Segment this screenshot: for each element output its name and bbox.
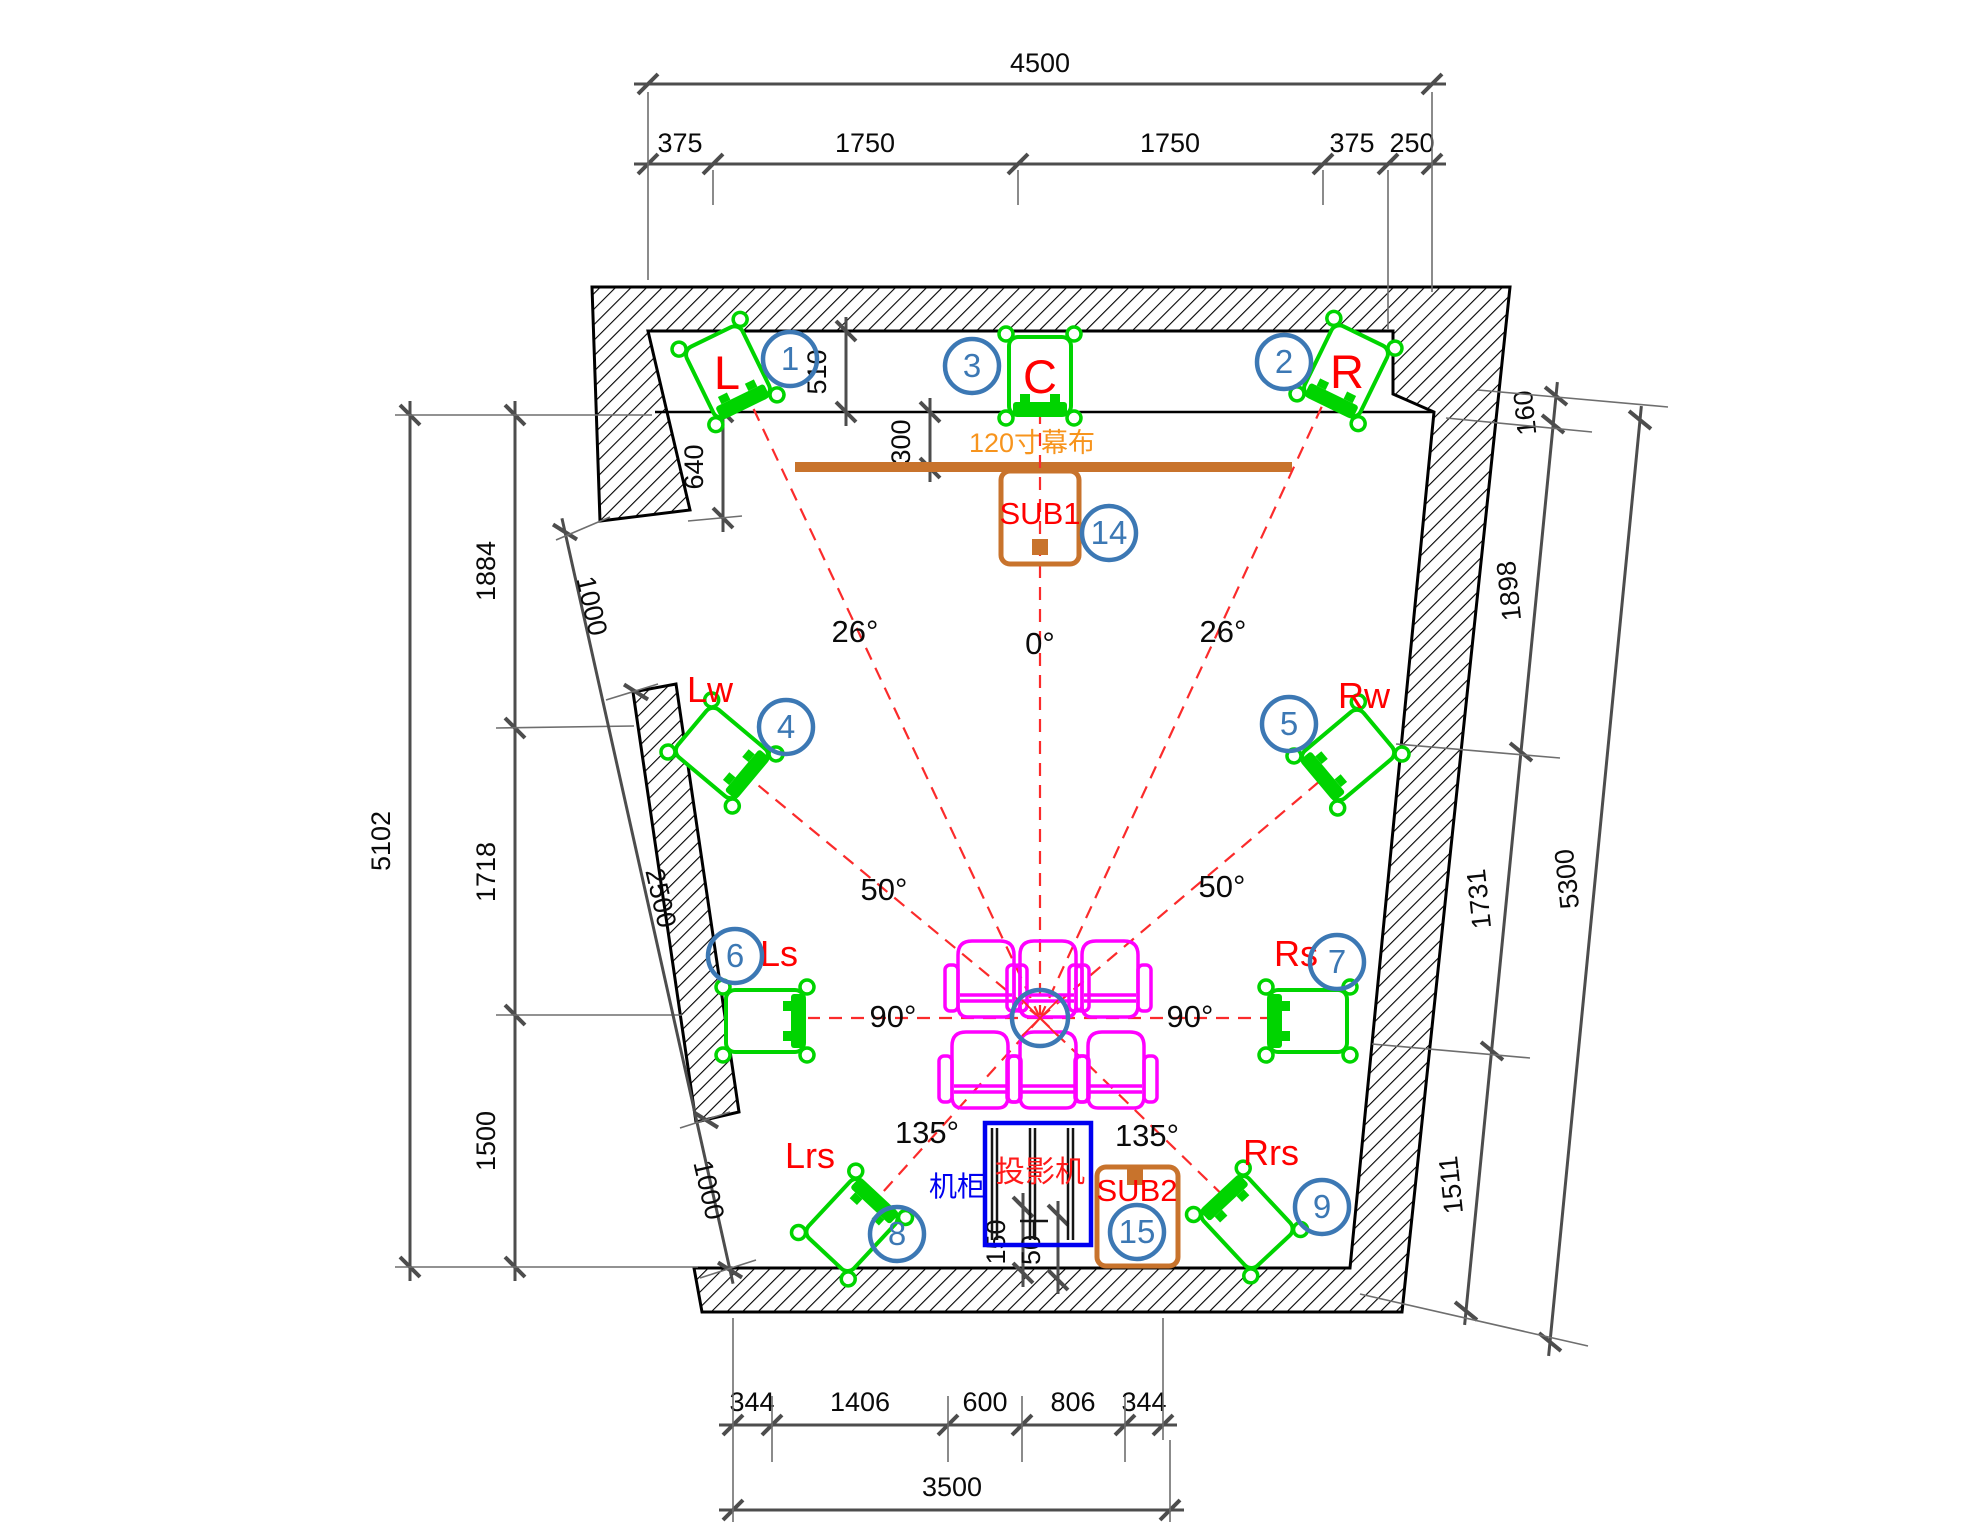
callout-number-L: 1: [781, 340, 799, 377]
callout-number-R: 2: [1275, 343, 1293, 380]
callout-number-Rw: 5: [1280, 705, 1298, 742]
dim-label: 5300: [1549, 847, 1585, 910]
speaker-label-R: R: [1330, 345, 1364, 398]
dim-bottom-segments: 3441406600806344: [719, 1387, 1177, 1462]
speaker-label-L: L: [714, 346, 740, 399]
callout-number-Rrs: 9: [1313, 1188, 1331, 1225]
dim-label: 1406: [830, 1387, 890, 1417]
dim-label: 344: [1121, 1387, 1166, 1417]
dim-label: 1718: [471, 842, 501, 902]
dim-label: 806: [1050, 1387, 1095, 1417]
dim-left-wall-segments: 100025001000: [553, 517, 756, 1284]
angle-label-left-wide: 50°: [861, 872, 908, 907]
seat: [1069, 941, 1151, 1017]
sub1-label: SUB1: [1000, 496, 1081, 531]
dim-top-total: 4500: [634, 48, 1446, 94]
dim-label: 3500: [922, 1472, 982, 1502]
dim-label: 1000: [570, 573, 613, 638]
screen-label: 120寸幕布: [969, 428, 1095, 458]
dim-label: 300: [886, 419, 916, 464]
dim-label: 600: [962, 1387, 1007, 1417]
speaker-label-Ls: Ls: [760, 933, 798, 974]
dim-label: 1898: [1491, 559, 1527, 622]
callout-number-Ls: 6: [726, 937, 744, 974]
seat: [1075, 1032, 1157, 1108]
dim-label: 4500: [1010, 48, 1070, 78]
callout-number-SUB2: 15: [1119, 1213, 1156, 1250]
callout-number-Lw: 4: [777, 708, 795, 745]
angle-label-left-rear: 135°: [895, 1115, 959, 1150]
dim-label: 375: [657, 128, 702, 158]
cabinet-label: 机柜: [929, 1171, 985, 1202]
callout-number-SUB1: 14: [1091, 514, 1128, 551]
ray-Rw: [1040, 764, 1340, 1018]
sub1-driver-icon: [1032, 539, 1048, 555]
dim-label: 5102: [366, 811, 396, 871]
dim-label: 640: [679, 444, 709, 489]
angle-label-left-side: 90°: [870, 999, 917, 1034]
speaker-label-C: C: [1023, 350, 1057, 403]
speaker-Ls: [716, 980, 814, 1062]
angle-label-right-wide: 50°: [1199, 869, 1246, 904]
angle-label-left-front: 26°: [832, 614, 879, 649]
dim-label: 1750: [1140, 128, 1200, 158]
callout-number-Lrs: 8: [888, 1215, 906, 1252]
dim-label: 344: [729, 1387, 774, 1417]
dim-label: 1731: [1461, 867, 1497, 930]
dim-label: 1500: [471, 1111, 501, 1171]
angle-label-right-front: 26°: [1200, 614, 1247, 649]
dim-label: 1000: [687, 1157, 730, 1222]
listening-position: [1012, 990, 1068, 1046]
dim-left-total: 5102: [366, 401, 420, 1281]
floor-plan-page: 4500375175017503752505102188417181500100…: [0, 0, 1981, 1538]
speaker-Rs: [1259, 980, 1357, 1062]
dim-label: 1884: [471, 541, 501, 601]
dim-label: 160: [1508, 389, 1543, 437]
dim-label: 375: [1329, 128, 1374, 158]
dim-label: 1750: [835, 128, 895, 158]
callout-number-C: 3: [963, 347, 981, 384]
projector-label: 投影机: [995, 1156, 1085, 1189]
projection-screen: 120寸幕布: [795, 428, 1292, 472]
speaker-label-Rw: Rw: [1338, 675, 1391, 716]
speaker-label-Lrs: Lrs: [785, 1135, 835, 1176]
speaker-label-Lw: Lw: [687, 669, 734, 710]
dim-label: 250: [1389, 128, 1434, 158]
angle-label-right-side: 90°: [1167, 999, 1214, 1034]
angle-label-center: 0°: [1025, 626, 1055, 661]
speaker-label-Rrs: Rrs: [1243, 1132, 1299, 1173]
angle-label-right-rear: 135°: [1115, 1118, 1179, 1153]
listener-circle: [1012, 990, 1068, 1046]
dim-left-segments: 188417181500: [395, 401, 698, 1281]
home-theater-floor-plan: 4500375175017503752505102188417181500100…: [0, 0, 1981, 1538]
callout-number-Rs: 7: [1328, 943, 1346, 980]
dim-label: 1511: [1433, 1155, 1469, 1216]
